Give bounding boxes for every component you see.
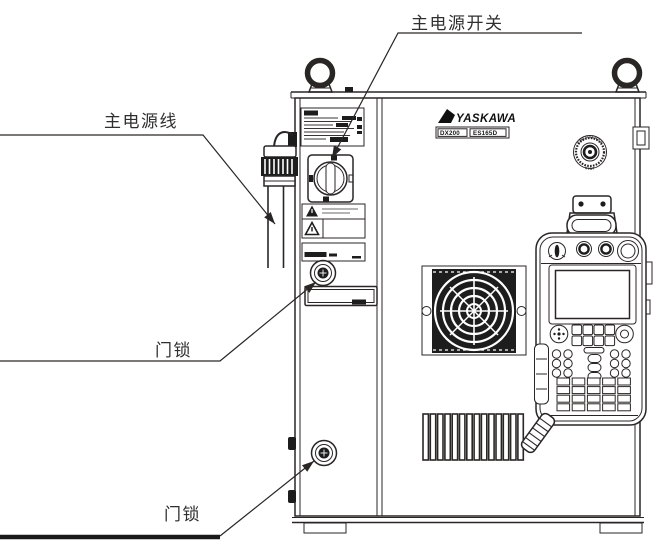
- model-text: DX200: [440, 130, 460, 137]
- controller-cabinet-diagram: YASKAWA DX200 ES165D EMERGENCY STOP: [0, 0, 664, 548]
- door-lock-upper: [311, 261, 336, 286]
- callout-text-door-lock-upper: 门锁: [155, 341, 192, 360]
- callout-main-power-cable: 主电源线: [0, 112, 278, 227]
- top-bolt: [345, 87, 353, 92]
- callout-door-lock-lower: 门锁: [0, 458, 317, 537]
- main-power-switch: [308, 155, 353, 202]
- rating-label: [301, 108, 364, 146]
- cable-body: [268, 186, 284, 268]
- yaskawa-mark-icon: [438, 109, 455, 123]
- emergency-stop-button: EMERGENCY STOP: [574, 135, 607, 171]
- warning-label-1: [302, 204, 365, 219]
- fan-grille: [422, 266, 526, 355]
- arrowhead-main-power-cable: [264, 212, 278, 227]
- fan-mount-left: [422, 307, 431, 316]
- warning-label-2: [302, 219, 365, 238]
- foot-left: [304, 523, 346, 533]
- series-text: ES165D: [473, 130, 498, 137]
- door-handle: [305, 287, 377, 306]
- left-hinge-nub-2: [288, 490, 296, 503]
- callout-door-lock-upper: 门锁: [0, 279, 319, 361]
- switch-handle: [326, 163, 335, 194]
- leader-main-power-cable: [0, 135, 275, 224]
- callout-text-door-lock-lower: 门锁: [164, 505, 201, 524]
- eyebolt-left: [308, 61, 333, 93]
- cabinet-base: [292, 518, 644, 534]
- callout-text-main-power-cable: 主电源线: [104, 112, 178, 131]
- yaskawa-logo: YASKAWA: [438, 109, 516, 125]
- vent-grille: [423, 414, 523, 460]
- connector-flange: [264, 146, 296, 157]
- brand-text: YASKAWA: [456, 113, 516, 125]
- pendant-strap: [535, 344, 549, 404]
- model-badge: DX200 ES165D: [436, 127, 509, 138]
- callout-text-main-power-switch: 主电源开关: [411, 14, 504, 33]
- info-label: [302, 243, 365, 261]
- fan-mount-right: [517, 307, 526, 316]
- door-lock-lower: [312, 441, 337, 466]
- main-power-cable: [261, 132, 298, 268]
- right-hinge: [633, 127, 649, 149]
- left-hinge-nub-1: [288, 437, 296, 450]
- foot-right: [600, 523, 642, 533]
- eyebolt-right: [615, 61, 640, 93]
- teach-pendant: [520, 196, 646, 454]
- leader-main-power-switch: [332, 33, 582, 158]
